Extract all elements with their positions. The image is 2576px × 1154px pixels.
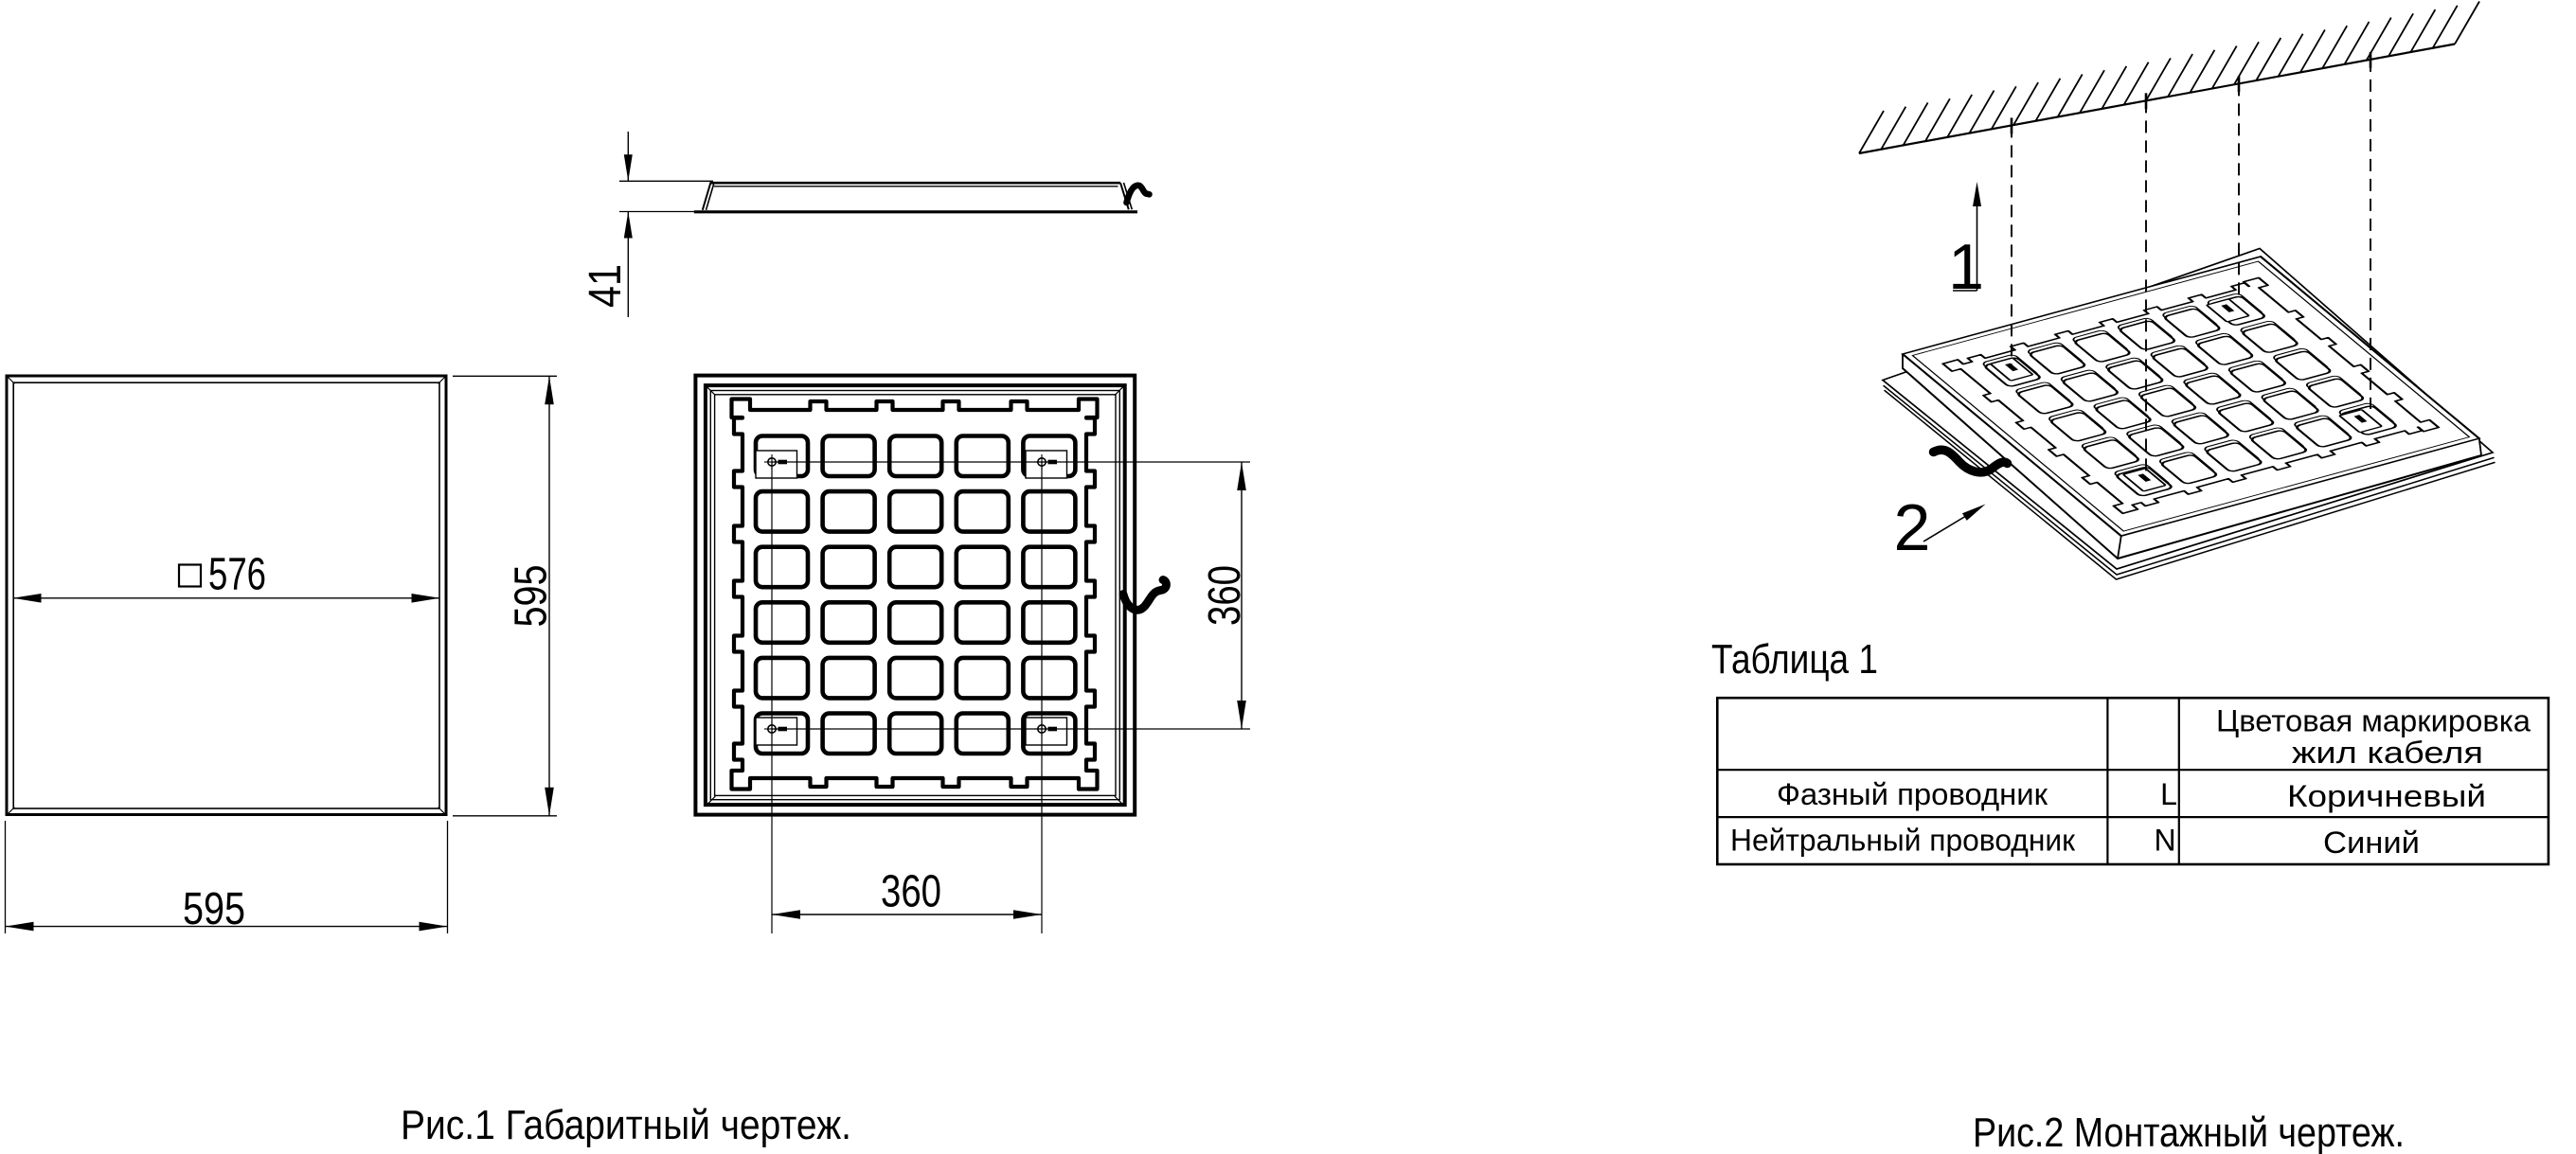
svg-text:360: 360	[1200, 565, 1250, 626]
svg-text:жил кабеля: жил кабеля	[2292, 736, 2483, 770]
svg-text:41: 41	[581, 264, 631, 308]
svg-text:595: 595	[183, 884, 245, 934]
svg-text:Таблица 1: Таблица 1	[1711, 636, 1878, 683]
svg-text:Цветовая маркировка: Цветовая маркировка	[2216, 704, 2531, 738]
svg-text:Синий: Синий	[2323, 826, 2420, 860]
svg-text:1: 1	[1948, 231, 1984, 303]
svg-text:N: N	[2154, 824, 2175, 858]
svg-text:2: 2	[1894, 490, 1931, 564]
svg-text:L: L	[2160, 777, 2177, 811]
svg-text:Нейтральный проводник: Нейтральный проводник	[1730, 824, 2076, 858]
svg-text:Коричневый: Коричневый	[2287, 779, 2486, 813]
svg-text:Рис.1 Габаритный чертеж.: Рис.1 Габаритный чертеж.	[401, 1102, 851, 1148]
svg-text:360: 360	[881, 867, 941, 917]
svg-text:Фазный проводник: Фазный проводник	[1777, 777, 2048, 811]
svg-text:576: 576	[208, 550, 266, 600]
svg-text:Рис.2 Монтажный чертеж.: Рис.2 Монтажный чертеж.	[1973, 1110, 2405, 1154]
svg-text:595: 595	[507, 565, 557, 628]
